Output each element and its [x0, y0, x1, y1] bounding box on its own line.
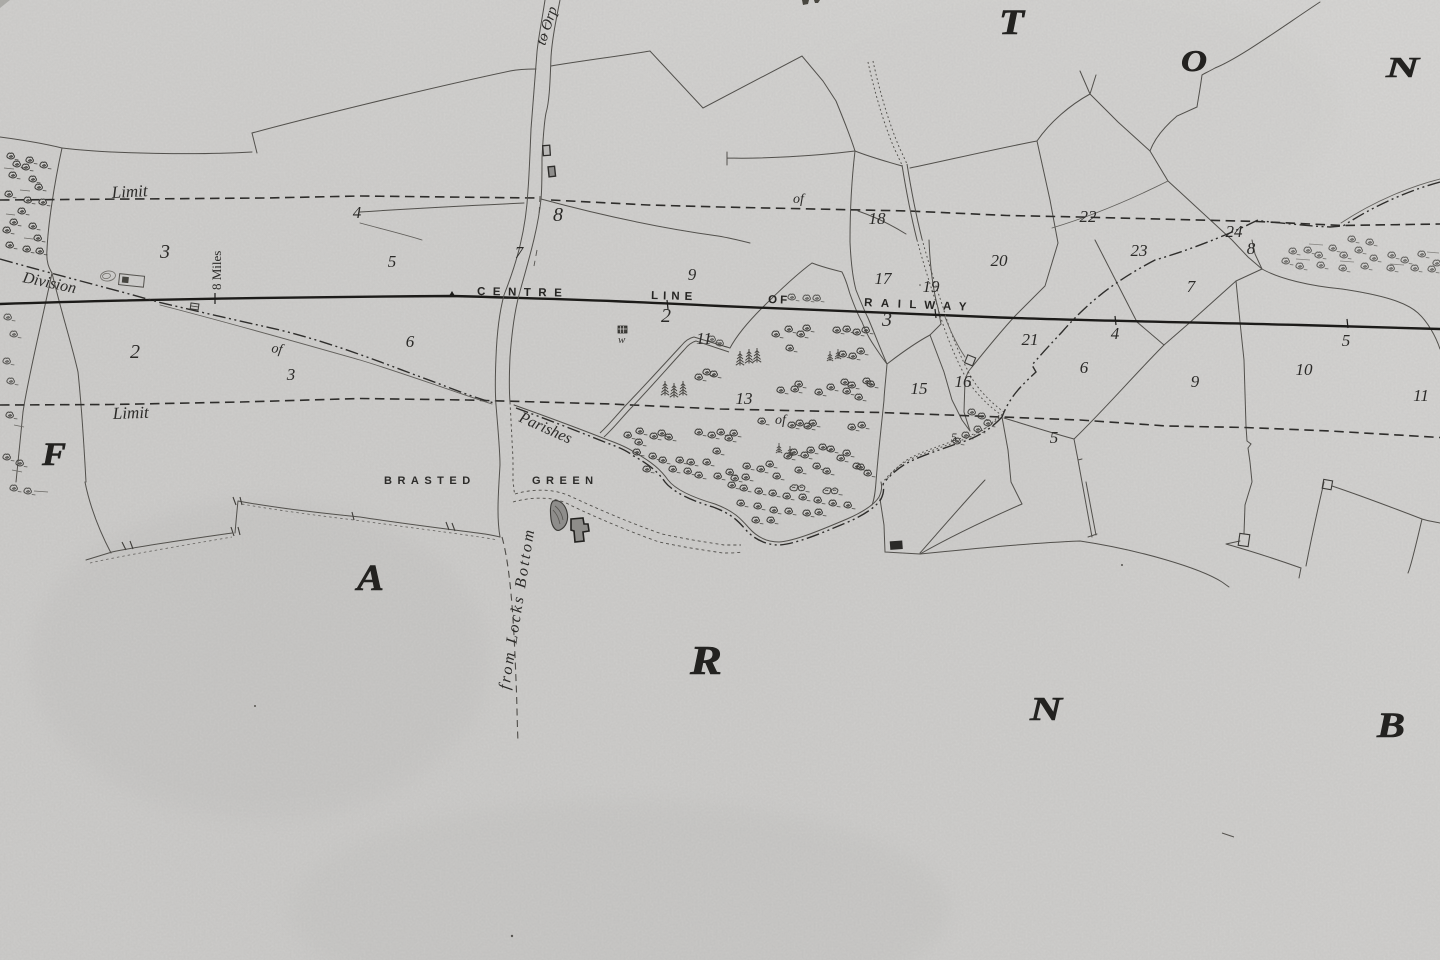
svg-text:2: 2: [130, 341, 140, 363]
svg-text:R: R: [689, 637, 722, 683]
svg-text:5: 5: [1050, 428, 1059, 447]
svg-text:10: 10: [1296, 360, 1314, 379]
svg-text:CENTRE: CENTRE: [477, 286, 569, 300]
svg-text:3: 3: [286, 365, 296, 384]
svg-text:3: 3: [159, 241, 170, 263]
svg-text:5: 5: [951, 430, 957, 444]
svg-text:13: 13: [736, 389, 753, 408]
svg-text:11: 11: [696, 329, 712, 348]
svg-text:A: A: [355, 558, 384, 599]
svg-text:22: 22: [1080, 207, 1098, 226]
svg-text:17: 17: [875, 269, 894, 288]
svg-text:T: T: [999, 2, 1026, 42]
svg-text:BRASTED: BRASTED: [384, 475, 476, 487]
svg-text:F: F: [41, 437, 66, 473]
svg-text:6: 6: [406, 332, 415, 351]
svg-text:GREEN: GREEN: [532, 475, 599, 487]
svg-text:20: 20: [991, 251, 1009, 270]
svg-text:19: 19: [923, 277, 941, 296]
svg-text:O: O: [1181, 43, 1207, 78]
svg-text:21: 21: [1022, 330, 1039, 349]
svg-text:15: 15: [911, 379, 928, 398]
svg-text:5: 5: [1342, 331, 1351, 350]
svg-text:8 Miles: 8 Miles: [209, 251, 224, 290]
svg-text:Limit: Limit: [110, 181, 149, 202]
svg-text:9: 9: [688, 265, 697, 284]
svg-text:9: 9: [1191, 372, 1200, 391]
svg-text:Limit: Limit: [111, 403, 150, 423]
svg-text:3: 3: [881, 309, 892, 331]
svg-text:4: 4: [1111, 324, 1120, 343]
svg-text:LINE: LINE: [651, 290, 698, 303]
svg-text:N: N: [1384, 52, 1420, 84]
svg-text:18: 18: [869, 209, 887, 228]
svg-text:N: N: [1029, 691, 1064, 728]
svg-text:2: 2: [661, 305, 671, 327]
svg-text:4: 4: [353, 203, 362, 222]
svg-text:B: B: [1376, 705, 1405, 745]
svg-text:8: 8: [1247, 239, 1256, 258]
svg-text:8: 8: [553, 204, 563, 226]
svg-text:w: w: [618, 334, 626, 346]
svg-text:11: 11: [1413, 386, 1429, 405]
svg-text:5: 5: [388, 252, 397, 271]
svg-text:OF: OF: [768, 294, 790, 307]
svg-text:23: 23: [1131, 241, 1148, 260]
svg-text:6: 6: [1080, 358, 1089, 377]
svg-text:16: 16: [955, 372, 973, 391]
svg-text:24: 24: [1226, 222, 1244, 241]
